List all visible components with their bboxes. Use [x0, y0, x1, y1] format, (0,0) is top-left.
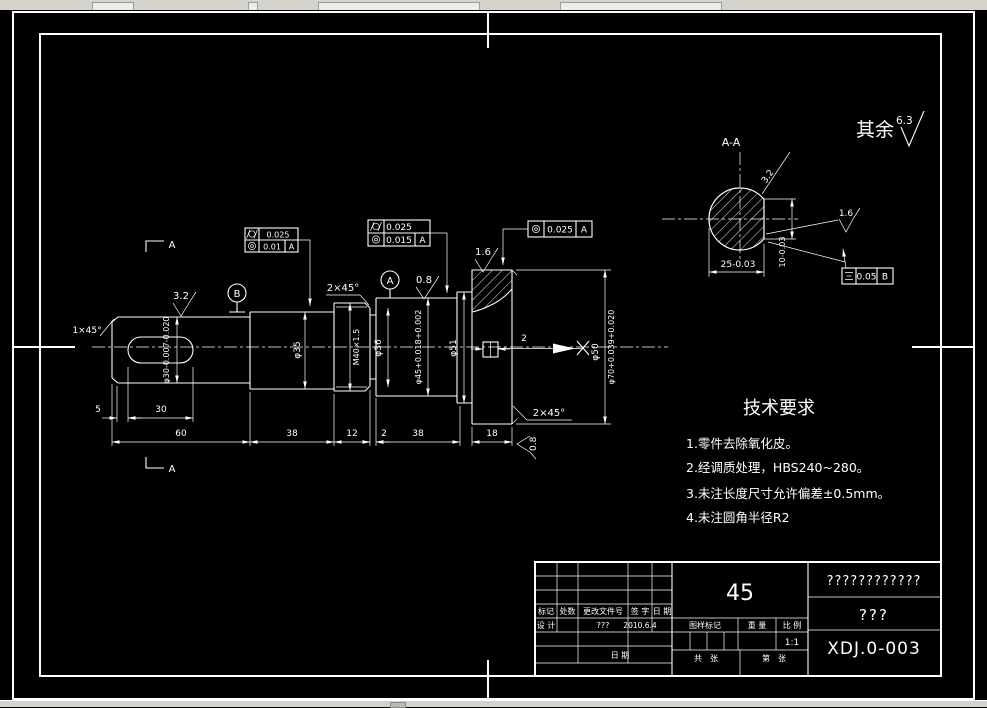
- tech-item: 3.未注长度尺寸允许偏差±0.5mm。: [686, 486, 890, 501]
- dim-l38a: 38: [286, 429, 298, 439]
- tolerance-datum: B: [882, 273, 888, 283]
- tech-item: 2.经调质处理，HBS240~280。: [686, 460, 869, 475]
- chamfer-flange-label: 2×45°: [533, 408, 565, 419]
- dim-l12: 12: [346, 429, 357, 439]
- weight-label: 重 量: [748, 620, 767, 630]
- design-date: 2010.6.4: [623, 621, 657, 630]
- surface-default-label: 其余: [856, 119, 894, 141]
- tolerance-value: 0.025: [267, 231, 290, 240]
- model-space-background: [0, 10, 987, 706]
- sheet-no-label: 第 张: [762, 653, 786, 663]
- dim-l5: 5: [95, 405, 101, 415]
- scale-value: 1:1: [785, 638, 799, 648]
- roughness-value: 3.2: [173, 291, 189, 302]
- section-label-top: A: [169, 240, 176, 251]
- dim-phi35: φ35: [293, 341, 303, 358]
- date-label: 日 期: [611, 651, 630, 660]
- scale-label: 比 例: [783, 620, 802, 630]
- rev-header-mark: 标记: [538, 606, 554, 616]
- section-circle-hatch: [709, 188, 764, 250]
- material-grade: 45: [726, 581, 754, 606]
- rev-header-date: 日 期: [653, 607, 672, 616]
- part-code-unresolved: ???: [859, 606, 889, 624]
- dim-phi70: φ70+0.039+0.020: [607, 310, 616, 385]
- dim-phi30: φ30-0.007-0.020: [162, 316, 171, 383]
- tech-item: 4.未注圆角半径R2: [686, 510, 790, 525]
- dim-l18: 18: [486, 429, 498, 439]
- dim-phi51: φ51: [449, 339, 459, 356]
- tolerance-value: 0.01: [263, 243, 281, 252]
- datum-a-label: A: [387, 276, 394, 287]
- roughness-value: 0.8: [416, 275, 432, 286]
- dim-25: 25-0.03: [721, 260, 756, 270]
- dim-l38b: 38: [412, 429, 424, 439]
- dim-phi45: φ45+0.018+0.002: [414, 310, 423, 385]
- chamfer-thread-label: 2×45°: [327, 283, 359, 294]
- roughness-value: 0.8: [529, 436, 539, 451]
- drawing-number: XDJ.0-003: [827, 639, 921, 659]
- roughness-value: 1.6: [475, 247, 491, 258]
- dim-phi36: φ36: [374, 339, 384, 357]
- stamp-label: 图样标记: [689, 620, 721, 630]
- sheets-total-label: 共 张: [694, 654, 718, 663]
- designer-name: ???: [597, 621, 610, 630]
- chamfer-left-label: 1×45°: [72, 326, 101, 336]
- datum-b-label: B: [234, 289, 241, 300]
- dim-l2: 2: [381, 429, 387, 439]
- surface-default-value: 6.3: [896, 115, 913, 127]
- dim-l60: 60: [175, 429, 187, 439]
- tech-item: 1.零件去除氧化皮。: [686, 436, 798, 451]
- dim-thread: M40×1.5: [352, 329, 361, 366]
- rev-header-file: 更改文件号: [583, 606, 623, 616]
- tolerance-datum: A: [289, 243, 295, 252]
- tech-requirements-title: 技术要求: [743, 398, 815, 419]
- tolerance-value: 0.025: [386, 223, 412, 233]
- section-view-title: A-A: [722, 136, 741, 149]
- part-name-unresolved: ????????????: [827, 574, 922, 589]
- cad-canvas[interactable]: A A B A 3.2 0.8 1.6 0.8 1×45° 2×45° 2×45…: [0, 10, 987, 706]
- dim-pin-width: 2: [521, 334, 527, 344]
- statusbar-widget[interactable]: [390, 702, 406, 708]
- roughness-value: 1.6: [839, 209, 854, 219]
- rev-header-count: 处数: [560, 606, 576, 616]
- design-label: 设 计: [537, 620, 556, 630]
- tolerance-datum: A: [419, 236, 426, 246]
- rev-header-sign: 签 字: [631, 606, 650, 616]
- tolerance-value: 0.025: [547, 226, 573, 236]
- dim-10: 10-0.03: [778, 237, 787, 268]
- tolerance-datum: A: [581, 226, 588, 236]
- tolerance-value: 0.015: [386, 236, 412, 246]
- tolerance-value: 0.05: [856, 273, 876, 283]
- dim-phi50: φ50: [591, 343, 601, 361]
- dim-l30: 30: [155, 405, 167, 415]
- section-label-bottom: A: [169, 464, 176, 475]
